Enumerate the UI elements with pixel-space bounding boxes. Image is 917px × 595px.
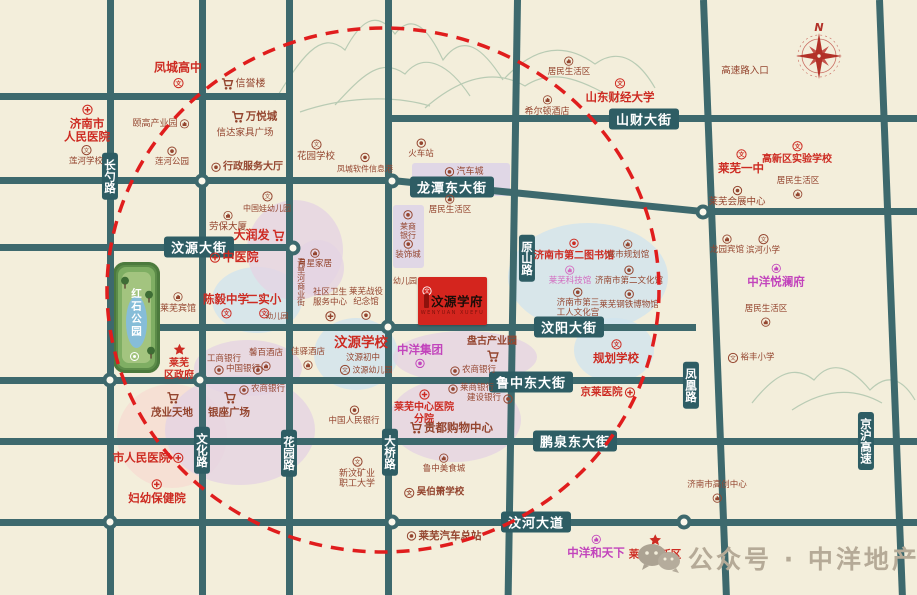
poi-label: 中医院 xyxy=(222,251,258,265)
poi-label: 装饰城 xyxy=(395,251,421,261)
poi-label: 莱芜会展中心 xyxy=(708,198,765,209)
poi-label: 莱芜 区政府 xyxy=(164,358,194,381)
poi-marker: 凤城软件信息港 xyxy=(337,152,393,173)
poi-marker: 中洋和天下 xyxy=(567,534,625,559)
poi-label: 高新区实验学校 xyxy=(762,154,832,166)
poi-label: 济南市高创中心 xyxy=(687,481,747,491)
poi-label: 滨河小学 xyxy=(746,247,780,257)
poi-marker: 龙园宾馆 xyxy=(710,234,744,256)
poi-marker: 信誉楼 xyxy=(221,78,266,91)
poi-label: 吴伯箫学校 xyxy=(417,488,465,499)
poi-label: 汶源学校 xyxy=(334,336,388,352)
poi-label: 高速路入口 xyxy=(721,67,769,78)
poi-label: 莲河学校 xyxy=(69,158,103,168)
poi-label: 居民生活区 xyxy=(548,68,591,78)
building-icon xyxy=(761,317,771,327)
poi-marker: 居民生活区 xyxy=(548,56,591,78)
poi-label: 农商银行 xyxy=(251,385,285,395)
poi-marker: 中国人民银行 xyxy=(328,405,379,427)
poi-label: 汶源初中 xyxy=(346,354,380,364)
road-junction xyxy=(385,515,400,530)
bank-icon xyxy=(239,385,249,395)
poi-marker: 文裕丰小学 xyxy=(727,353,774,364)
poi-label: 希尔顿酒店 xyxy=(524,107,569,117)
road xyxy=(0,93,293,100)
school-icon: 文 xyxy=(792,141,803,152)
building-icon xyxy=(439,453,449,463)
school-icon: 文 xyxy=(172,77,183,88)
hospital-icon xyxy=(419,389,430,400)
building-icon xyxy=(542,95,552,105)
compass-icon: N xyxy=(790,20,848,90)
poi-label: 银座广场 xyxy=(208,406,250,418)
poi-label: 裕丰小学 xyxy=(740,353,774,363)
watermark: 公众号 · 中洋地产 xyxy=(636,540,917,576)
road-label: 山财大街 xyxy=(609,109,679,130)
svg-text:文: 文 xyxy=(738,151,744,159)
poi-marker: 莱商 银行 xyxy=(400,210,416,240)
poi-label: 陈毅中学 xyxy=(203,293,249,306)
poi-marker: 济南市第二图书馆 xyxy=(534,238,614,262)
poi-label: 新汶矿业 职工大学 xyxy=(339,469,375,490)
hongshi-park: 红石公园 xyxy=(113,262,160,373)
building-icon xyxy=(173,292,183,302)
poi-marker: 文滨河小学 xyxy=(746,234,780,257)
cart-icon xyxy=(409,422,422,435)
svg-text:文: 文 xyxy=(354,458,360,466)
poi-label: 茂业天地 xyxy=(151,406,193,418)
bank-icon xyxy=(349,405,359,415)
svg-text:文: 文 xyxy=(264,193,270,201)
building-icon xyxy=(793,189,803,199)
poi-label: 中洋和天下 xyxy=(567,546,625,559)
poi-label: 馨百酒店 xyxy=(249,349,283,359)
poi-marker: 居民生活区 xyxy=(777,177,820,199)
poi-marker: 文新汶矿业 职工大学 xyxy=(339,456,375,490)
poi-icon xyxy=(360,152,370,162)
poi-label: 社区卫生 服务中心 xyxy=(313,289,347,309)
school-icon: 文 xyxy=(310,139,321,150)
location-map: 红石公园 文 汶源学府 WENYUAN XUEFU N xyxy=(0,0,917,595)
estate-name: 汶源学府 xyxy=(431,291,483,310)
building-icon xyxy=(771,263,781,273)
poi-marker: 幼儿园 xyxy=(266,313,289,322)
poi-marker: 文山东财经大学 xyxy=(586,78,655,104)
poi-marker: 中洋悦澜府 xyxy=(747,263,805,288)
building-icon xyxy=(564,56,574,66)
poi-label: 莱芜宾馆 xyxy=(160,304,196,314)
poi-label: 汽车城 xyxy=(456,167,483,177)
poi-marker: 银座广场 xyxy=(208,391,250,418)
svg-text:文: 文 xyxy=(175,79,181,87)
cart-icon xyxy=(486,349,499,362)
svg-text:文: 文 xyxy=(730,354,736,362)
poi-marker: 文规划学校 xyxy=(593,339,639,365)
poi-icon xyxy=(407,531,417,541)
poi-label: 莱芜钢铁博物馆 xyxy=(599,301,659,311)
poi-label: 城市规划馆 xyxy=(607,251,650,261)
poi-marker: 大润发 xyxy=(233,229,284,243)
hospital-icon xyxy=(625,387,636,398)
poi-label: 莱商 银行 xyxy=(400,222,416,240)
road-junction xyxy=(677,515,692,530)
poi-marker: 幼儿园 xyxy=(393,276,417,285)
poi-marker: 文高新区实验学校 xyxy=(762,141,832,166)
poi-label: 济南市第三 工人文化宫 xyxy=(557,299,600,319)
building-icon xyxy=(310,248,320,258)
poi-label: 莱芜科技馆 xyxy=(549,277,592,287)
cart-icon xyxy=(221,78,234,91)
svg-text:文: 文 xyxy=(794,142,800,150)
poi-label: 居民生活区 xyxy=(745,305,788,315)
poi-icon xyxy=(167,146,177,156)
poi-marker: 济南市第三 工人文化宫 xyxy=(557,287,600,319)
road-label: 大桥路 xyxy=(382,429,398,476)
building-icon xyxy=(261,361,271,371)
poi-label: 妇幼保健院 xyxy=(128,492,186,505)
tree-icon xyxy=(145,346,157,360)
poi-marker: 莱芜战役 纪念馆 xyxy=(349,288,383,320)
poi-label: 凤城软件信息港 xyxy=(337,164,393,173)
road-label: 原山路 xyxy=(519,235,535,282)
cart-icon xyxy=(272,229,285,242)
road-junction xyxy=(193,373,208,388)
poi-marker: 莱芜汽车总站 xyxy=(407,530,482,542)
svg-text:文: 文 xyxy=(617,80,623,88)
poi-marker: 青草河商业街 xyxy=(296,258,305,306)
poi-marker: 城市规划馆 xyxy=(607,239,650,261)
poi-marker: 居民生活区 xyxy=(429,194,472,216)
poi-marker: 农商银行 xyxy=(239,385,285,395)
poi-marker: 市人民医院 xyxy=(113,451,184,464)
wechat-icon xyxy=(636,543,682,573)
poi-marker: 文凤城高中 xyxy=(154,62,202,89)
building-icon xyxy=(303,360,313,370)
seal-icon xyxy=(424,294,429,308)
cart-icon xyxy=(166,391,179,404)
road-junction xyxy=(103,373,118,388)
hospital-icon xyxy=(82,104,93,115)
hospital-icon xyxy=(209,252,220,263)
poi-marker: 济南市第二文化馆 xyxy=(595,265,663,287)
road-wenhe-avenue xyxy=(0,519,917,526)
poi-label: 信誉楼 xyxy=(236,78,266,90)
poi-label: 中国娃幼儿园 xyxy=(243,204,291,213)
estate-wenyuan-xuefu: 文 汶源学府 WENYUAN XUEFU xyxy=(418,277,487,325)
hospital-icon xyxy=(152,479,163,490)
hospital-icon xyxy=(324,310,335,321)
building-icon xyxy=(223,211,233,221)
poi-label: 火车站 xyxy=(408,150,434,160)
svg-text:文: 文 xyxy=(342,366,348,374)
poi-marker: 颐高产业园 xyxy=(132,119,189,129)
poi-label: 鲁中美食城 xyxy=(423,465,466,475)
poi-label: 莱芜战役 纪念馆 xyxy=(349,288,383,308)
tree-icon xyxy=(143,290,155,304)
estate-pinyin: WENYUAN XUEFU xyxy=(418,310,487,316)
poi-label: 济南市第二文化馆 xyxy=(595,277,663,287)
poi-marker: 文莱芜一中 xyxy=(718,149,764,175)
bank-icon xyxy=(403,210,413,220)
poi-marker: 火车站 xyxy=(408,138,434,160)
school-icon: 文 xyxy=(404,488,415,499)
school-icon: 文 xyxy=(615,78,626,89)
poi-marker: 文吴伯箫学校 xyxy=(404,488,465,499)
poi-marker: 莲河公园 xyxy=(155,146,189,168)
building-icon xyxy=(591,534,601,544)
poi-label: 盘古产业园 xyxy=(467,336,517,348)
road-label: 凤凰路 xyxy=(683,362,699,409)
poi-label: 建设银行 xyxy=(467,394,501,404)
school-icon: 文 xyxy=(221,308,232,319)
poi-marker: 汽车城 xyxy=(444,167,483,177)
building-icon xyxy=(623,239,633,249)
road-pengquan-east-street xyxy=(0,438,917,445)
poi-label: 幼儿园 xyxy=(266,313,289,322)
poi-marker: 文花园学校 xyxy=(297,139,335,163)
svg-text:文: 文 xyxy=(313,141,319,149)
poi-marker: 鲁中美食城 xyxy=(423,453,466,475)
road-label: 汶河大道 xyxy=(501,512,571,533)
poi-marker: 行政服务大厅 xyxy=(211,161,283,173)
road-label: 鲁中东大街 xyxy=(489,372,573,393)
road-label: 花园路 xyxy=(281,430,297,477)
poi-marker: 妇幼保健院 xyxy=(128,479,186,505)
road-wenyang-street xyxy=(160,324,696,331)
road-junction xyxy=(103,515,118,530)
bank-icon xyxy=(503,394,513,404)
poi-label: 山东财经大学 xyxy=(586,91,655,104)
poi-label: 济南市 人民医院 xyxy=(64,117,110,143)
school-icon: 文 xyxy=(757,234,768,245)
poi-marker: 济南市高创中心 xyxy=(687,481,747,503)
poi-marker: 建设银行 xyxy=(467,394,513,404)
poi-label: 京莱医院 xyxy=(581,386,623,398)
poi-icon xyxy=(211,162,221,172)
road-label: 汶阳大街 xyxy=(534,317,604,338)
bank-icon xyxy=(214,365,224,375)
poi-marker: 贵都购物中心 xyxy=(409,421,493,434)
road-changshao-road xyxy=(107,0,114,595)
poi-icon xyxy=(732,186,742,196)
road-label: 鹏泉东大街 xyxy=(533,431,617,452)
road-junction xyxy=(385,174,400,189)
poi-label: 颐高产业园 xyxy=(132,119,177,129)
poi-label: 佳驿酒店 xyxy=(291,348,325,358)
poi-label: 中洋悦澜府 xyxy=(747,275,805,288)
poi-label: 二实小 xyxy=(247,293,282,306)
bank-icon xyxy=(403,239,413,249)
poi-label: 莲河公园 xyxy=(155,158,189,168)
poi-label: 大润发 xyxy=(233,229,269,243)
poi-marker: 居民生活区 xyxy=(745,305,788,327)
building-icon xyxy=(712,493,722,503)
poi-label: 龙园宾馆 xyxy=(710,246,744,256)
poi-icon xyxy=(624,265,634,275)
poi-label: 信达家具广场 xyxy=(216,129,273,140)
poi-marker: 文陈毅中学 xyxy=(203,293,249,319)
road-jinghu-expressway xyxy=(876,0,906,595)
poi-marker: 莱芜 区政府 xyxy=(164,343,194,381)
poi-marker: 莱芜科技馆 xyxy=(549,265,592,287)
poi-marker: 文中国娃幼儿园 xyxy=(243,191,291,213)
poi-marker: 社区卫生 服务中心 xyxy=(313,289,347,322)
poi-marker: 莱芜会展中心 xyxy=(708,186,765,209)
svg-text:文: 文 xyxy=(223,310,229,318)
poi-label: 幼儿园 xyxy=(393,276,417,285)
building-icon xyxy=(180,119,190,129)
poi-marker: 农商银行 xyxy=(450,366,496,376)
poi-label: 莱芜汽车总站 xyxy=(419,530,482,542)
poi-label: 居民生活区 xyxy=(777,177,820,187)
cart-icon xyxy=(231,111,244,124)
poi-marker: 茂业天地 xyxy=(151,391,193,418)
cart-icon xyxy=(223,391,236,404)
poi-label: 莱芜一中 xyxy=(718,162,764,175)
svg-text:文: 文 xyxy=(406,489,412,497)
poi-icon xyxy=(416,138,426,148)
poi-icon xyxy=(573,287,583,297)
poi-label: 济南市第二图书馆 xyxy=(534,250,614,262)
poi-marker: 信达家具广场 xyxy=(216,129,273,140)
poi-label: 花园学校 xyxy=(297,152,335,163)
poi-label: 市人民医院 xyxy=(113,451,171,464)
school-icon: 文 xyxy=(340,365,351,376)
school-icon: 文 xyxy=(611,339,622,350)
road-junction xyxy=(195,174,210,189)
road-label: 文化路 xyxy=(194,427,210,474)
poi-marker: 文莲河学校 xyxy=(69,145,103,168)
poi-marker: 装饰城 xyxy=(395,239,421,261)
poi-label: 居民生活区 xyxy=(429,206,472,216)
poi-icon xyxy=(361,310,371,320)
poi-marker: 盘古产业园 xyxy=(467,336,517,363)
road-label: 长勺路 xyxy=(102,153,118,200)
poi-label: 贵都购物中心 xyxy=(424,421,493,434)
poi-icon xyxy=(624,289,634,299)
poi-marker: 汶源初中 xyxy=(346,354,380,364)
road-junction xyxy=(381,320,396,335)
poi-marker: 希尔顿酒店 xyxy=(524,95,569,117)
poi-marker: 汶源学校 xyxy=(334,336,388,352)
poi-label: 农商银行 xyxy=(462,366,496,376)
svg-text:文: 文 xyxy=(760,235,766,243)
school-icon: 文 xyxy=(80,145,91,156)
building-icon xyxy=(445,194,455,204)
bank-icon xyxy=(415,359,425,369)
road-huayuan-road xyxy=(286,0,293,595)
poi-marker: 文汶源幼儿园 xyxy=(340,365,393,376)
poi-label: 规划学校 xyxy=(593,352,639,365)
school-icon: 文 xyxy=(351,456,362,467)
poi-marker: 高速路入口 xyxy=(721,67,769,78)
poi-label: 中洋集团 xyxy=(397,343,443,356)
school-icon: 文 xyxy=(262,191,273,202)
poi-icon xyxy=(444,167,454,177)
road-daqiao-road xyxy=(385,0,392,595)
building-icon xyxy=(565,265,575,275)
poi-label: 万悦城 xyxy=(246,111,278,123)
watermark-text: 公众号 · 中洋地产 xyxy=(688,540,917,576)
poi-icon xyxy=(569,238,579,248)
poi-marker: 中洋集团 xyxy=(397,343,443,368)
building-icon xyxy=(722,234,732,244)
poi-label: 凤城高中 xyxy=(154,62,202,76)
road-fenghuang-road xyxy=(700,0,730,595)
hospital-icon xyxy=(172,453,183,464)
poi-marker: 莱芜钢铁博物馆 xyxy=(599,289,659,311)
park-name: 红石公园 xyxy=(129,288,144,338)
svg-text:文: 文 xyxy=(83,146,89,154)
poi-label: 汶源幼儿园 xyxy=(353,365,393,374)
school-icon: 文 xyxy=(727,353,738,364)
star-icon xyxy=(173,343,186,356)
poi-label: 青草河商业街 xyxy=(296,258,305,306)
poi-marker: 万悦城 xyxy=(231,111,278,124)
poi-marker: 莱芜宾馆 xyxy=(160,292,196,314)
road-label: 京沪高速 xyxy=(858,412,874,470)
bank-icon xyxy=(450,366,460,376)
poi-marker: 馨百酒店 xyxy=(249,349,283,371)
poi-marker: 济南市 人民医院 xyxy=(64,104,110,143)
poi-marker: 中医院 xyxy=(209,251,258,265)
compass-north: N xyxy=(814,21,823,34)
poi-label: 中国人民银行 xyxy=(328,417,379,427)
school-icon: 文 xyxy=(736,149,747,160)
poi-label: 行政服务大厅 xyxy=(223,161,283,173)
svg-text:文: 文 xyxy=(613,341,619,349)
poi-marker: 佳驿酒店 xyxy=(291,348,325,370)
poi-marker: 京莱医院 xyxy=(581,386,636,398)
park-poi-icon xyxy=(130,352,139,361)
